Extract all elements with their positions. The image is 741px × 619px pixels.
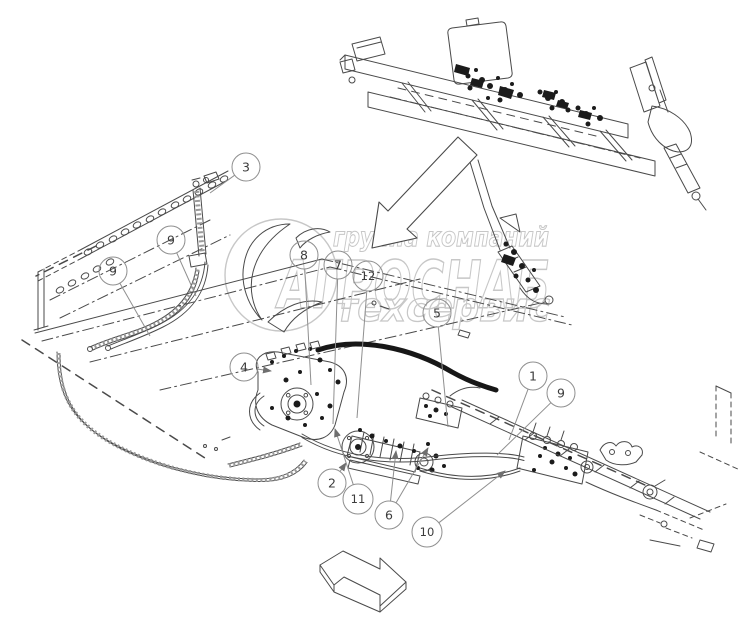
callout-number: 2 bbox=[328, 476, 336, 491]
callout-leader bbox=[340, 463, 346, 472]
callout-9: 9 bbox=[497, 379, 575, 455]
callout-leader bbox=[439, 471, 505, 523]
callout-number: 10 bbox=[420, 525, 435, 539]
callout-number: 4 bbox=[240, 360, 248, 375]
callout-number: 12 bbox=[361, 269, 376, 283]
pressure-hose bbox=[318, 344, 496, 390]
callout-leader bbox=[177, 253, 196, 296]
pump-assembly-center bbox=[342, 428, 446, 484]
callout-number: 9 bbox=[109, 264, 117, 279]
callout-number: 3 bbox=[242, 160, 250, 175]
callouts-layer: 39987125419211610 bbox=[99, 153, 575, 547]
callout-number: 11 bbox=[351, 492, 366, 506]
parts-diagram-page: группа компаний АГРОСНАБ техсервис bbox=[0, 0, 741, 619]
direction-arrow-icon bbox=[320, 551, 406, 612]
hydraulic-hoses bbox=[228, 434, 704, 530]
callout-4: 4 bbox=[230, 353, 271, 381]
callout-leader bbox=[258, 369, 271, 371]
callout-leader bbox=[497, 403, 551, 455]
callout-3: 3 bbox=[210, 153, 260, 193]
callout-2: 2 bbox=[318, 463, 346, 497]
callout-number: 5 bbox=[433, 306, 441, 321]
callout-number: 1 bbox=[529, 369, 537, 384]
pump-assembly-left bbox=[250, 341, 347, 439]
callout-number: 7 bbox=[334, 258, 342, 273]
callout-number: 6 bbox=[385, 508, 393, 523]
callout-leader bbox=[438, 327, 448, 427]
callout-10: 10 bbox=[412, 471, 505, 547]
callout-number: 9 bbox=[167, 233, 175, 248]
callout-number: 9 bbox=[557, 386, 565, 401]
callout-1: 1 bbox=[509, 362, 547, 440]
callout-leader bbox=[210, 175, 235, 193]
callout-number: 8 bbox=[300, 248, 308, 263]
